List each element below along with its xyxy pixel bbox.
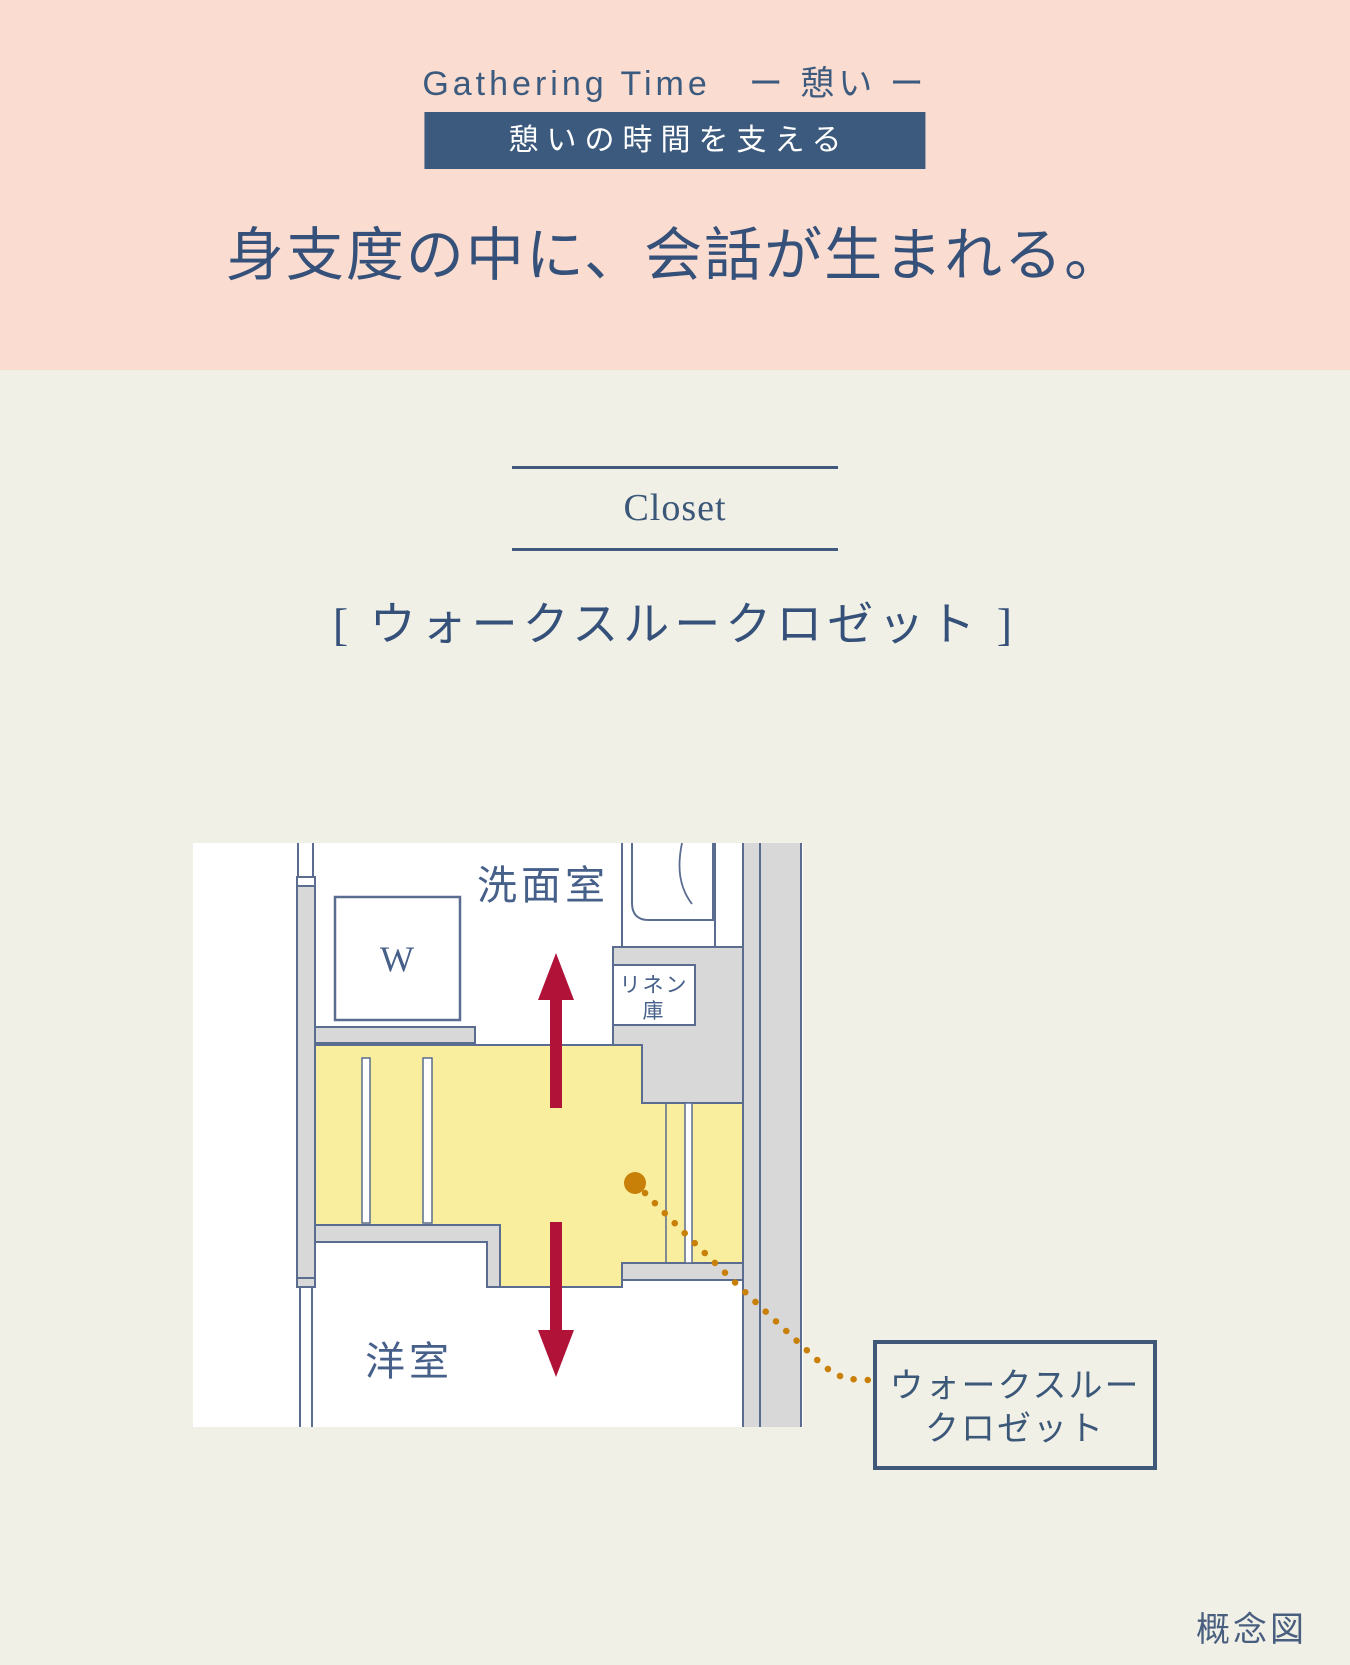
eyebrow-text: Gathering Time ー 憩い ー — [0, 56, 1350, 105]
hero-section: Gathering Time ー 憩い ー 憩いの時間を支える 身支度の中に、会… — [0, 0, 1350, 370]
washer-box: W — [335, 897, 460, 1020]
emphasis-badge: 憩いの時間を支える — [424, 112, 925, 169]
page-title: 身支度の中に、会話が生まれる。 — [0, 224, 1350, 288]
bathtub — [632, 843, 713, 920]
callout-line1: ウォークスルー — [890, 1368, 1141, 1405]
linen-label-line2: 庫 — [643, 999, 666, 1023]
linen-label-line1: リネン — [620, 973, 689, 997]
callout-box: ウォークスルー クロゼット — [875, 1342, 1155, 1468]
washroom-label: 洗面室 — [477, 863, 609, 908]
wall-below-washer — [315, 1027, 475, 1043]
callout-line2: クロゼット — [925, 1411, 1105, 1448]
leader-dot — [624, 1172, 646, 1194]
washer-label: W — [380, 939, 414, 979]
closet-section-subtitle: [ ウォークスルークロゼット ] — [0, 588, 1350, 654]
concept-caption: 概念図 — [1196, 1602, 1307, 1651]
corridor-wall — [743, 843, 802, 1427]
floor-plan: リネン 庫 W 洗面室 洋室 ウォークスルー クロゼット — [193, 843, 1160, 1480]
closet-section-title: Closet — [512, 466, 838, 551]
bedroom-label: 洋室 — [365, 1339, 453, 1384]
linen-cabinet: リネン 庫 — [613, 965, 695, 1025]
